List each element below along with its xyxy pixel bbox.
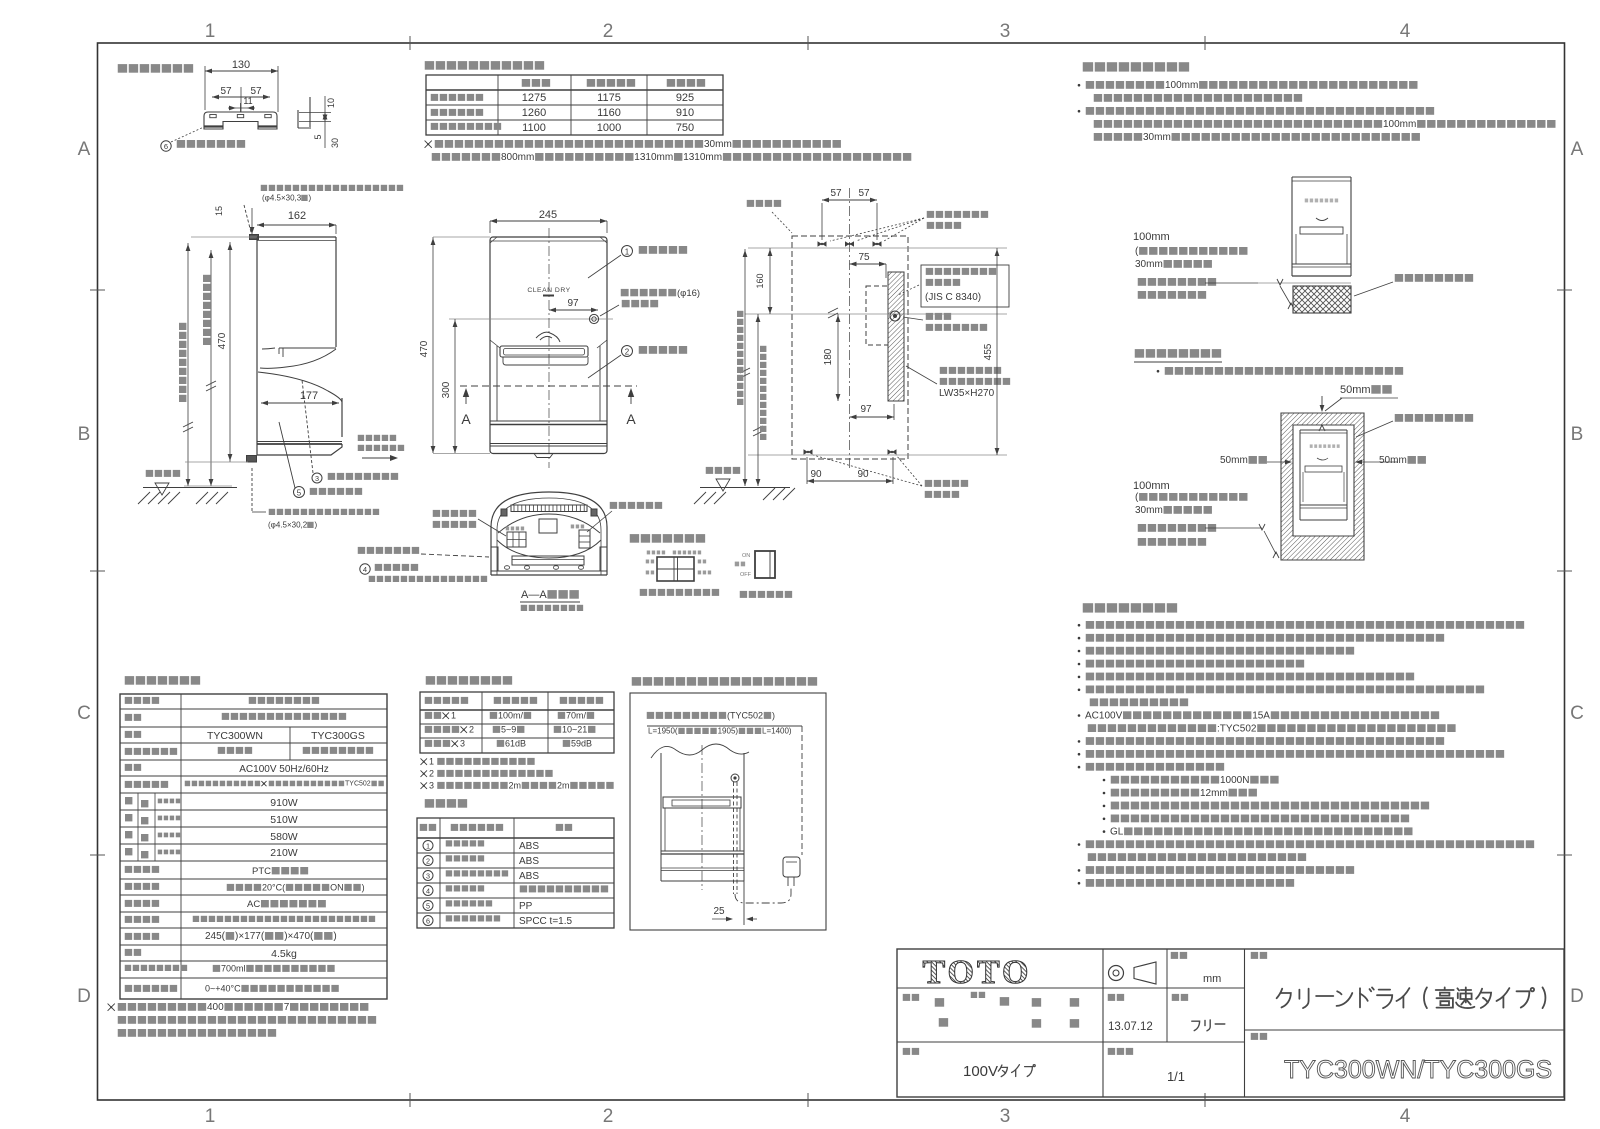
svg-text::TYC502: :TYC502: [1217, 723, 1257, 734]
svg-text:1: 1: [426, 842, 430, 851]
svg-text:B: B: [1571, 424, 1584, 445]
svg-text:(φ4.5×30,2: (φ4.5×30,2: [268, 521, 308, 530]
svg-text:A—A: A—A: [521, 589, 547, 601]
svg-text:100mm: 100mm: [1133, 231, 1170, 243]
svg-text:1: 1: [625, 247, 630, 256]
svg-text:)×470(: )×470(: [284, 931, 314, 942]
svg-text:177: 177: [300, 390, 318, 402]
svg-text:): ): [362, 882, 365, 892]
svg-text:15: 15: [214, 206, 224, 216]
svg-text:50mm: 50mm: [1340, 384, 1371, 396]
svg-text:580W: 580W: [270, 831, 298, 843]
svg-text:A: A: [78, 139, 91, 160]
svg-text:100mm: 100mm: [1383, 119, 1416, 130]
svg-text:TYC300WN: TYC300WN: [207, 730, 263, 742]
svg-text:LW35×H270: LW35×H270: [939, 388, 995, 399]
svg-text:750: 750: [676, 122, 694, 134]
svg-text:10: 10: [326, 98, 336, 108]
svg-text:PP: PP: [519, 901, 533, 912]
svg-text:2: 2: [469, 724, 474, 734]
svg-text:1160: 1160: [597, 107, 621, 119]
svg-text:C: C: [77, 703, 91, 724]
svg-text:30mm: 30mm: [704, 139, 732, 150]
svg-text:57: 57: [830, 188, 842, 199]
svg-text:1260: 1260: [522, 107, 546, 119]
svg-text:5~9: 5~9: [501, 724, 516, 734]
svg-text:ABS: ABS: [519, 856, 539, 867]
svg-text:100m/: 100m/: [498, 710, 524, 720]
svg-text:2: 2: [426, 857, 430, 866]
svg-text:1: 1: [429, 756, 434, 766]
svg-text:130: 130: [232, 59, 250, 71]
svg-text:AC100V 50Hz/60Hz: AC100V 50Hz/60Hz: [239, 764, 329, 775]
svg-text:2: 2: [603, 1106, 614, 1127]
svg-text:A: A: [626, 411, 636, 427]
svg-text:ON: ON: [330, 882, 344, 892]
svg-text:910: 910: [676, 107, 694, 119]
svg-text:4.5kg: 4.5kg: [271, 948, 297, 960]
svg-text:OFF: OFF: [740, 572, 752, 578]
svg-text:B: B: [78, 424, 91, 445]
svg-text:4: 4: [1400, 21, 1411, 42]
svg-text:SPCC t=1.5: SPCC t=1.5: [519, 916, 573, 927]
svg-text:C: C: [1570, 703, 1584, 724]
svg-text:11: 11: [243, 96, 252, 106]
svg-text:4: 4: [363, 565, 367, 574]
svg-text:GL: GL: [1110, 827, 1124, 838]
svg-text:50mm: 50mm: [1220, 455, 1248, 466]
svg-text:470: 470: [419, 340, 430, 357]
svg-text:61dB: 61dB: [505, 738, 526, 748]
svg-text:6: 6: [164, 142, 168, 151]
svg-text:59dB: 59dB: [571, 738, 592, 748]
svg-text:0~+40°C: 0~+40°C: [205, 983, 241, 993]
svg-text:4: 4: [1400, 1106, 1411, 1127]
svg-text:210W: 210W: [270, 847, 298, 859]
svg-text:mm: mm: [1203, 973, 1221, 985]
svg-text:1905): 1905): [718, 727, 739, 736]
svg-text:ON: ON: [742, 553, 750, 559]
svg-text:3: 3: [315, 474, 319, 483]
svg-text:D: D: [77, 986, 91, 1007]
svg-text:): ): [309, 194, 312, 203]
svg-text:): ): [333, 931, 336, 942]
svg-text:100mm: 100mm: [1133, 480, 1170, 492]
svg-text:L=1400): L=1400): [762, 727, 792, 736]
svg-text:100mm: 100mm: [1165, 80, 1198, 91]
svg-text:ABS: ABS: [519, 841, 539, 852]
svg-text:(φ4.5×30,3: (φ4.5×30,3: [262, 194, 302, 203]
svg-text:470: 470: [217, 332, 228, 349]
svg-text:2m: 2m: [557, 780, 570, 790]
svg-text:2: 2: [603, 21, 614, 42]
svg-text:A: A: [1571, 139, 1584, 160]
svg-text:12mm: 12mm: [1200, 788, 1228, 799]
svg-text:4: 4: [426, 887, 430, 896]
svg-text:3: 3: [1000, 1106, 1011, 1127]
svg-text:1100: 1100: [522, 122, 546, 134]
svg-text:3: 3: [460, 738, 465, 748]
svg-text:70m/: 70m/: [566, 710, 587, 720]
svg-text:1: 1: [451, 710, 456, 720]
svg-text:50mm: 50mm: [1379, 455, 1407, 466]
svg-text:1310mm: 1310mm: [683, 152, 722, 163]
svg-text:L=1950(: L=1950(: [648, 727, 678, 736]
svg-text:)×177(: )×177(: [235, 931, 265, 942]
svg-text:160: 160: [755, 273, 765, 288]
svg-text:10~21: 10~21: [562, 724, 587, 734]
svg-text:30: 30: [330, 138, 340, 148]
svg-text:ABS: ABS: [519, 871, 539, 882]
svg-text:57: 57: [220, 86, 232, 97]
svg-text:90: 90: [857, 469, 869, 480]
svg-text:TYC300GS: TYC300GS: [311, 730, 365, 742]
svg-text:925: 925: [676, 92, 694, 104]
svg-text:97: 97: [860, 404, 872, 415]
svg-text:3: 3: [1000, 21, 1011, 42]
svg-text:57: 57: [858, 188, 870, 199]
svg-text:1: 1: [205, 21, 216, 42]
svg-text:AC100V: AC100V: [1085, 711, 1123, 722]
svg-text:100V: 100V: [963, 1063, 998, 1080]
svg-text:A: A: [461, 411, 471, 427]
svg-text:245: 245: [539, 209, 557, 221]
svg-text:400: 400: [207, 1002, 224, 1013]
svg-text:455: 455: [983, 343, 994, 360]
svg-text:(JIS C 8340): (JIS C 8340): [925, 292, 981, 303]
svg-text:1000N: 1000N: [1220, 775, 1249, 786]
svg-text:910W: 910W: [270, 797, 298, 809]
svg-text:3: 3: [426, 872, 430, 881]
svg-text:1000: 1000: [597, 122, 621, 134]
svg-text:25: 25: [713, 906, 725, 917]
svg-text:7: 7: [284, 1002, 290, 1013]
svg-text:30mm: 30mm: [1135, 505, 1163, 516]
svg-text:2: 2: [429, 768, 434, 778]
svg-text:1275: 1275: [522, 92, 546, 104]
svg-text:TYC502: TYC502: [345, 781, 371, 788]
svg-text:2: 2: [625, 347, 630, 356]
svg-text:30mm: 30mm: [1143, 132, 1171, 143]
svg-text:75: 75: [858, 252, 870, 263]
svg-text:AC: AC: [247, 899, 260, 910]
svg-text:1310mm: 1310mm: [634, 152, 673, 163]
svg-text:(φ16): (φ16): [677, 288, 700, 299]
svg-text:1175: 1175: [597, 92, 621, 104]
svg-text:D: D: [1570, 986, 1584, 1007]
svg-text:(TYC502: (TYC502: [727, 710, 763, 720]
svg-text:510W: 510W: [270, 814, 298, 826]
svg-text:20°C(: 20°C(: [262, 882, 285, 892]
svg-text:30mm: 30mm: [1135, 259, 1163, 270]
svg-text:13.07.12: 13.07.12: [1108, 1021, 1153, 1033]
svg-text:700ml: 700ml: [221, 963, 246, 973]
svg-text:5: 5: [426, 902, 430, 911]
svg-text:TOTO: TOTO: [922, 954, 1031, 991]
svg-text:1/1: 1/1: [1167, 1069, 1185, 1084]
svg-text:1: 1: [205, 1106, 216, 1127]
svg-text:2m: 2m: [509, 780, 522, 790]
svg-text:162: 162: [288, 210, 306, 222]
svg-text:5: 5: [313, 134, 323, 139]
svg-text:180: 180: [823, 348, 834, 365]
svg-text:97: 97: [567, 298, 579, 309]
svg-text:5: 5: [297, 488, 302, 497]
svg-text:90: 90: [810, 469, 822, 480]
svg-text:): ): [772, 710, 775, 720]
svg-text:300: 300: [441, 381, 452, 398]
svg-text:PTC: PTC: [252, 866, 271, 877]
svg-text:800mm: 800mm: [501, 152, 534, 163]
svg-text:3: 3: [429, 780, 434, 790]
svg-text:): ): [315, 521, 318, 530]
svg-text:6: 6: [426, 917, 430, 926]
svg-text:245(: 245(: [205, 931, 226, 942]
svg-text:TYC300WN/TYC300GS: TYC300WN/TYC300GS: [1284, 1056, 1552, 1084]
svg-text:15A: 15A: [1252, 711, 1270, 722]
